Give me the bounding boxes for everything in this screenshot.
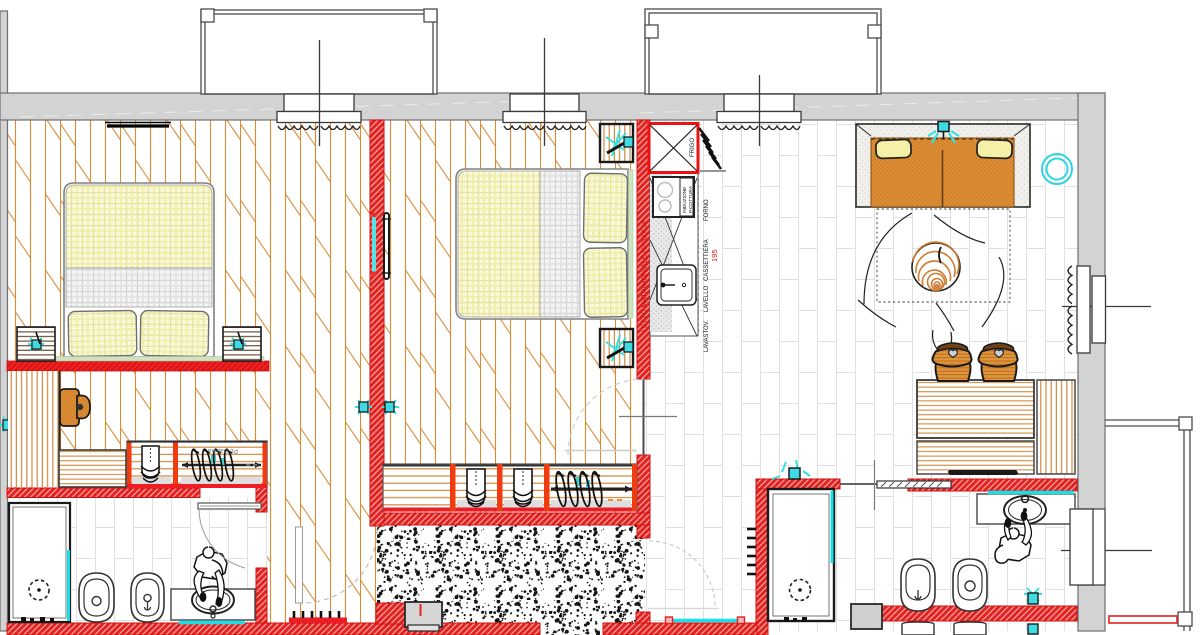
svg-text:FORNO: FORNO <box>704 199 710 221</box>
svg-text:FRIGO: FRIGO <box>690 138 696 157</box>
svg-text:LETTO MATRIMONIALE H=200CM: LETTO MATRIMONIALE H=200CM <box>642 221 649 332</box>
svg-text:INDUZIONE: INDUZIONE <box>682 187 688 213</box>
svg-text:LAVELLO: LAVELLO <box>704 285 710 312</box>
svg-text:PL Cabina: PL Cabina <box>208 447 238 454</box>
svg-text:P.COTTURA: P.COTTURA <box>688 185 694 213</box>
svg-text:195: 195 <box>710 249 719 262</box>
svg-text:LAVASTOV.: LAVASTOV. <box>704 320 710 352</box>
